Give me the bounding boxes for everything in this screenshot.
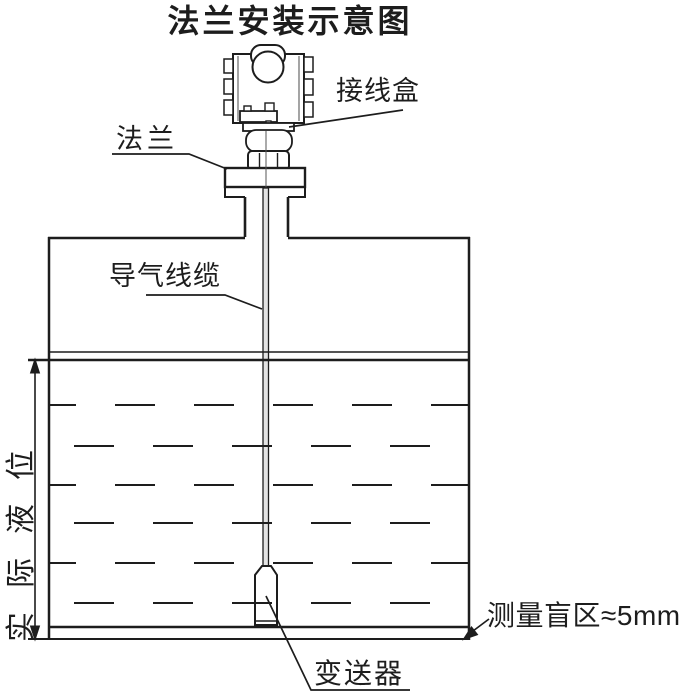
terminal-tab-left bbox=[244, 106, 251, 111]
transmitter-head bbox=[224, 45, 313, 170]
diagram-title: 法兰安装示意图 bbox=[95, 4, 485, 39]
air-cable-label: 导气线缆 bbox=[109, 262, 221, 292]
probe-transmitter bbox=[255, 566, 277, 625]
housing-ribs-left bbox=[224, 59, 233, 115]
leader-air-cable bbox=[146, 295, 262, 309]
transmitter-label: 变送器 bbox=[314, 659, 404, 690]
actual-level-label: 实际液位 bbox=[5, 430, 45, 642]
air-guide-cable bbox=[263, 188, 269, 567]
boss-body bbox=[246, 130, 292, 152]
blind-zone-label: 测量盲区≈5mm bbox=[487, 601, 681, 632]
liquid bbox=[28, 352, 469, 603]
housing-ribs-right bbox=[304, 57, 313, 117]
leader-flange bbox=[112, 154, 227, 169]
flange-label: 法兰 bbox=[116, 125, 178, 155]
flange-plate bbox=[225, 168, 305, 187]
diagram-canvas: 法兰安装示意图 接线盒 法兰 导气线缆 实际液位 变送器 测量盲区≈5mm bbox=[0, 0, 700, 700]
probe-body bbox=[255, 566, 277, 625]
junction-box-label: 接线盒 bbox=[336, 77, 420, 107]
dome-cap-glass bbox=[253, 52, 284, 83]
terminal-tab-right bbox=[265, 103, 274, 111]
tank bbox=[28, 237, 470, 640]
